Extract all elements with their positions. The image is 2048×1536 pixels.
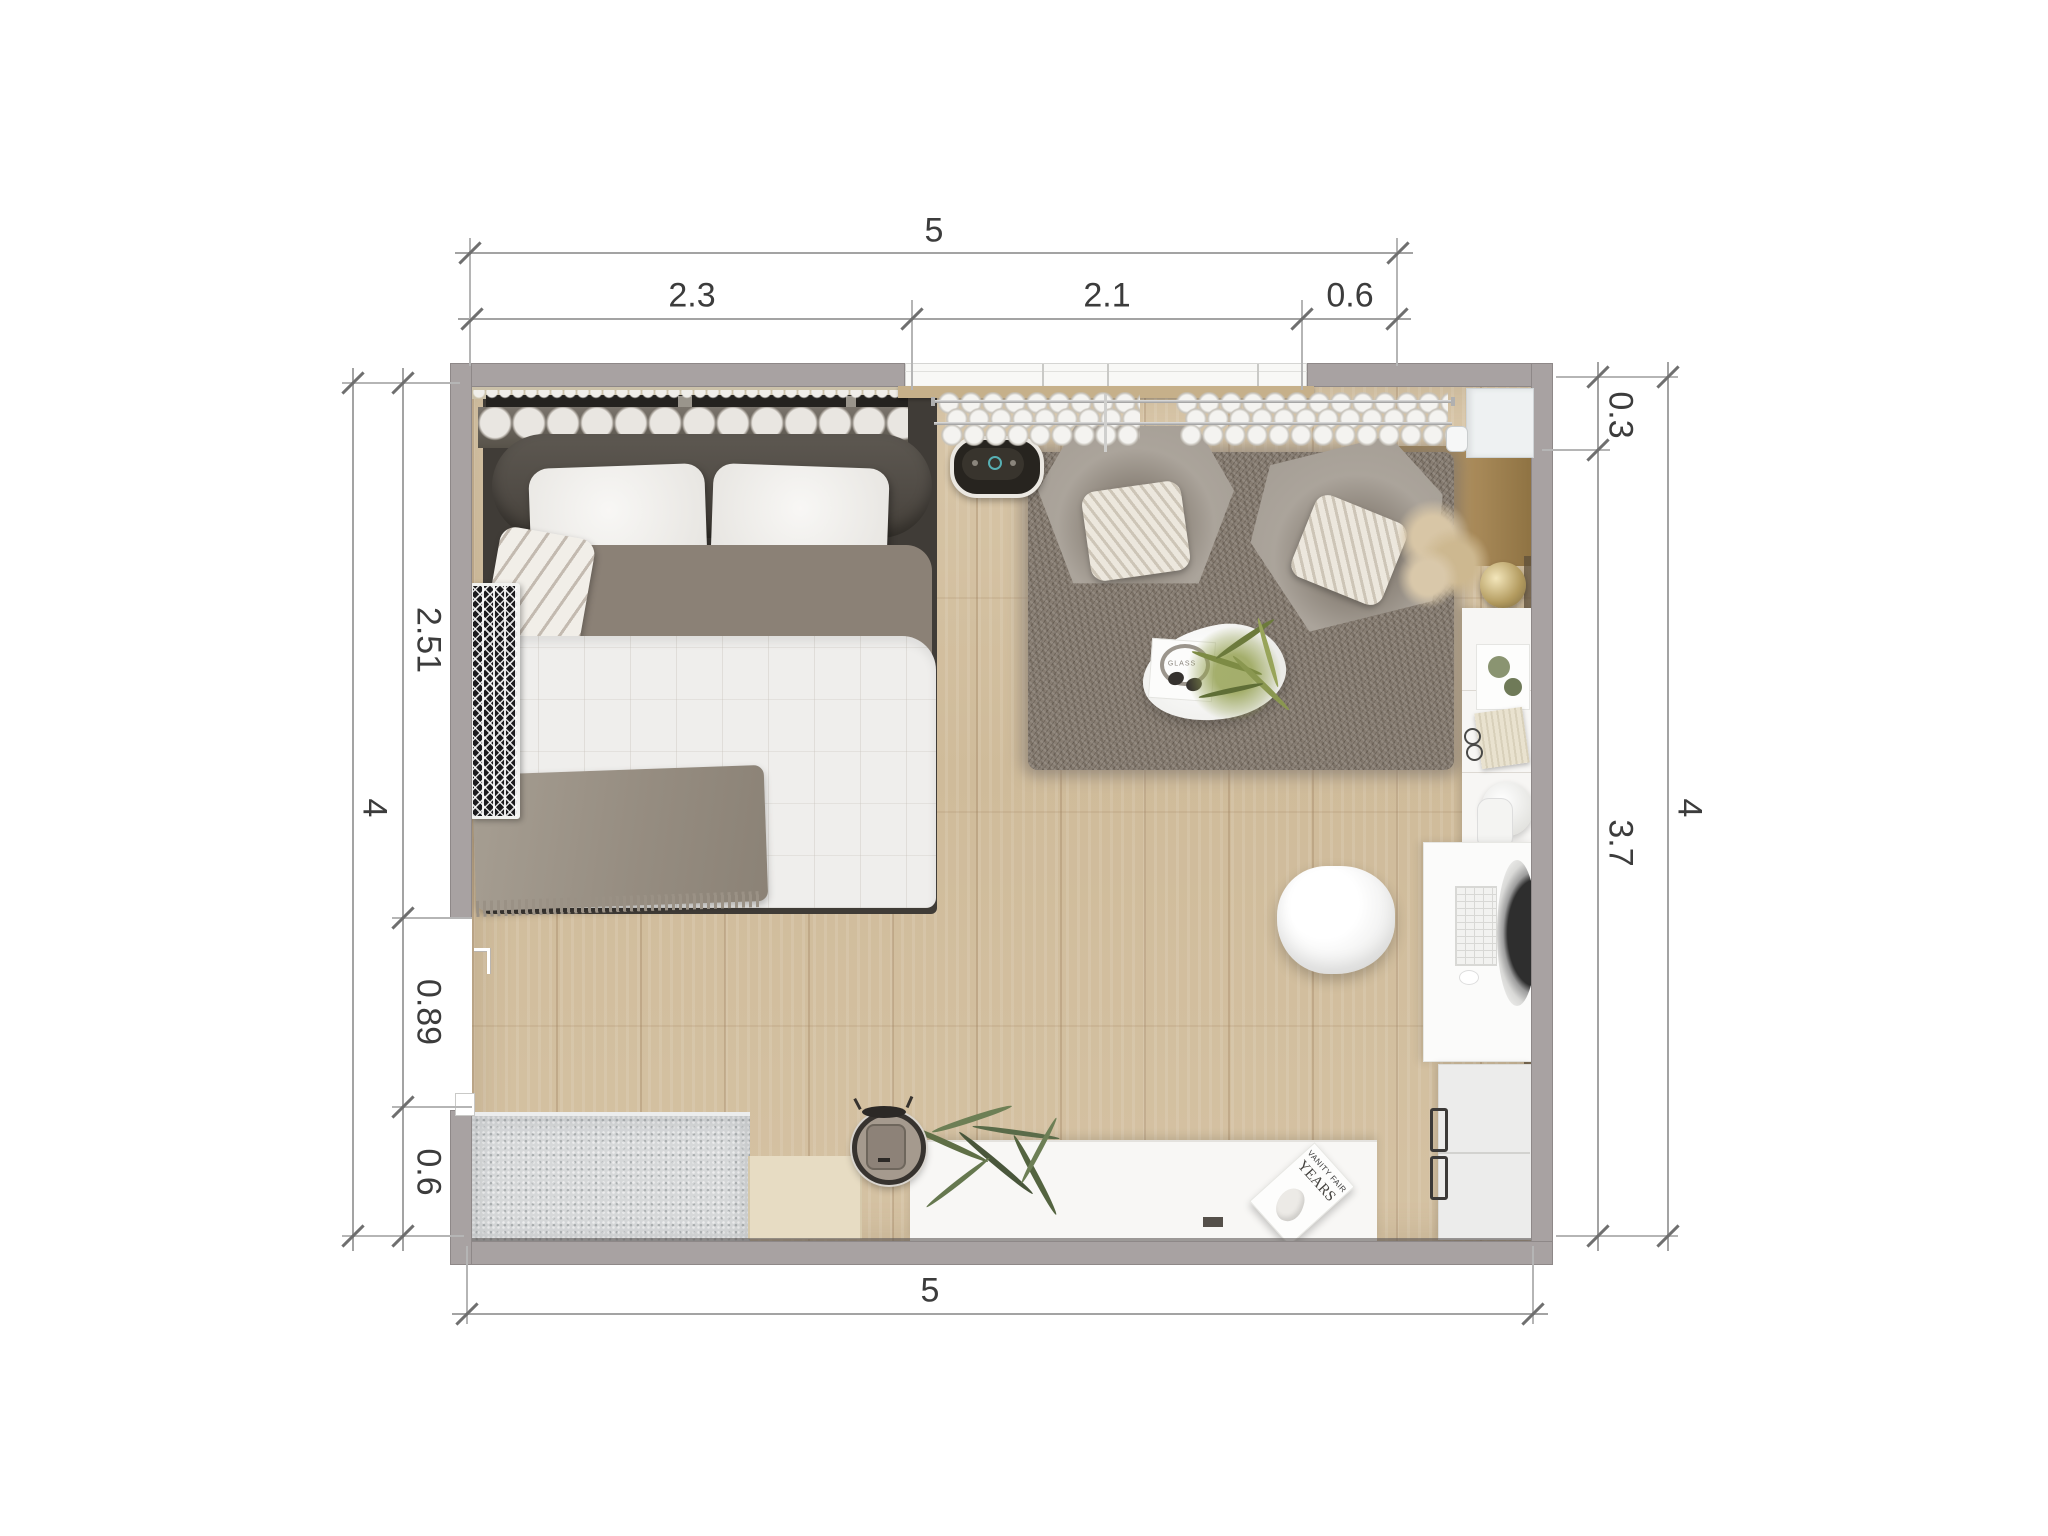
open-book (1474, 707, 1529, 769)
drawer-handle (1430, 1156, 1448, 1200)
extension-line (469, 238, 471, 366)
wall-left-lower (450, 1110, 472, 1265)
desk-chair (1277, 866, 1395, 974)
window-mullion (1042, 364, 1044, 386)
gold-bowl (1480, 562, 1526, 608)
speaker-led-ring (988, 456, 1002, 470)
dim-line-right-segments (1597, 362, 1599, 1251)
drawer-seam (1438, 1152, 1530, 1154)
curtain-rod (934, 400, 1452, 403)
curtain-ruffle (941, 424, 1140, 446)
floor-plan-canvas: GLASS (0, 0, 2048, 1536)
window-mullion (1107, 364, 1109, 386)
window (905, 363, 1307, 387)
speaker-button (972, 460, 978, 466)
curtain-rod-cap (931, 397, 935, 406)
dim-label-left-seg2: 0.89 (409, 979, 448, 1045)
bench (472, 1112, 750, 1243)
dim-label-right-seg2: 3.7 (1601, 819, 1640, 866)
console-magazine-flower (1488, 656, 1510, 678)
reading-glasses-lens (1466, 744, 1483, 761)
wall-top-left (450, 363, 905, 387)
radiator (470, 583, 520, 819)
dim-line-top-segments (458, 318, 1411, 320)
door-jamb-step (455, 1093, 475, 1116)
curtain-rod-support (1104, 394, 1107, 452)
extension-line (1556, 1235, 1678, 1237)
wall-top-right (1307, 363, 1553, 387)
door-jamb-mark-top-vert (487, 948, 490, 974)
curtain-ruffle (1180, 424, 1448, 446)
wall-left-upper (450, 363, 472, 918)
headboard-scallop-small (473, 390, 907, 403)
keyboard (1455, 886, 1497, 966)
reading-glasses (1464, 728, 1481, 745)
drawer-handle (1430, 1108, 1448, 1152)
console-magazine-flower (1504, 678, 1522, 696)
speaker-button (1010, 460, 1016, 466)
table-plant (1186, 626, 1282, 722)
dim-label-top-seg2: 2.1 (1083, 277, 1130, 316)
extension-line (1301, 300, 1303, 390)
dim-label-right-overall: 4 (1670, 799, 1709, 818)
dim-label-top-seg3: 0.6 (1326, 277, 1373, 316)
dim-line-left-segments (402, 368, 404, 1251)
extension-line (1396, 238, 1398, 366)
dim-label-top-seg1: 2.3 (668, 277, 715, 316)
dim-label-right-seg1: 0.3 (1601, 391, 1640, 438)
extension-line (911, 300, 913, 390)
dim-line-top-overall (455, 252, 1413, 254)
dim-label-left-overall: 4 (355, 799, 394, 818)
robot-vacuum-panel (866, 1124, 906, 1170)
dim-label-bottom-overall: 5 (921, 1272, 940, 1311)
wall-bottom (450, 1241, 1553, 1265)
dim-label-left-seg1: 2.51 (409, 607, 448, 673)
floor-mat (748, 1156, 862, 1239)
window-mid-rail (905, 371, 1307, 372)
wall-hook (1446, 426, 1468, 452)
curtain-rod-cap (1451, 397, 1455, 406)
robot-vacuum-bumper (862, 1106, 906, 1118)
armchair-1-cushion (1080, 479, 1192, 582)
dresser-handle (1203, 1217, 1223, 1227)
extension-line (1556, 376, 1678, 378)
dim-label-left-seg3: 0.6 (409, 1148, 448, 1195)
pampas-grass (1398, 548, 1458, 608)
window-mullion (1257, 364, 1259, 386)
console-seam (1462, 772, 1532, 773)
robot-vacuum-slot (878, 1158, 890, 1162)
curtain-rod (934, 422, 1452, 425)
wall-right (1531, 363, 1553, 1265)
dim-line-bottom-overall (452, 1313, 1548, 1315)
corner-cabinet (1466, 388, 1534, 458)
mouse (1459, 970, 1479, 985)
vanity-fair-figure (1272, 1185, 1307, 1225)
dim-label-top-overall: 5 (925, 212, 944, 251)
wall-inner-edge (472, 1238, 1531, 1241)
